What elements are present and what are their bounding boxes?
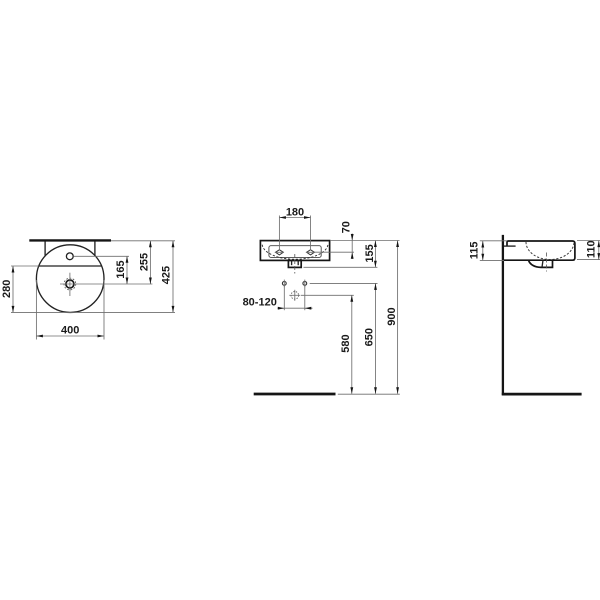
svg-text:255: 255	[139, 253, 151, 271]
svg-text:650: 650	[364, 328, 376, 346]
svg-text:425: 425	[161, 266, 173, 284]
svg-text:155: 155	[364, 244, 376, 262]
svg-text:400: 400	[61, 325, 79, 337]
svg-text:280: 280	[1, 280, 13, 298]
svg-text:110: 110	[586, 240, 598, 258]
svg-text:900: 900	[386, 307, 398, 325]
svg-text:115: 115	[469, 242, 481, 260]
svg-text:80-120: 80-120	[243, 297, 277, 309]
svg-text:180: 180	[286, 206, 304, 218]
svg-text:165: 165	[115, 260, 127, 278]
svg-text:580: 580	[340, 334, 352, 352]
svg-text:70: 70	[341, 221, 353, 233]
